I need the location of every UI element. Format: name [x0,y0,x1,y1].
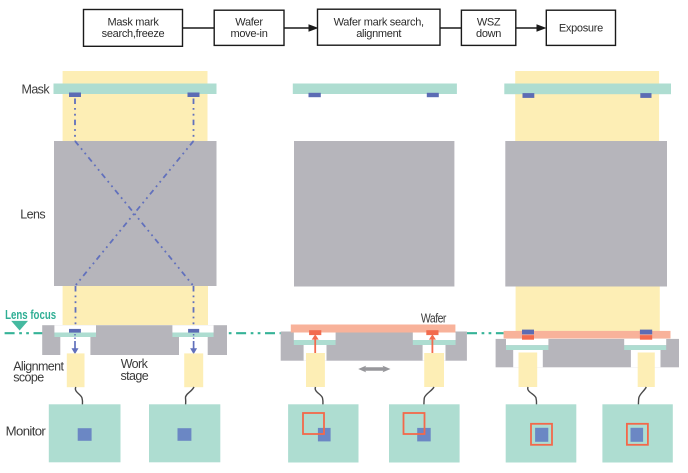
svg-text:stage: stage [121,369,149,383]
svg-text:Lens: Lens [20,208,45,222]
svg-text:scope: scope [13,370,44,384]
svg-text:Mask mark: Mask mark [107,17,159,29]
svg-text:down: down [476,28,501,40]
svg-text:Exposure: Exposure [559,23,603,35]
svg-text:WSZ: WSZ [477,17,501,29]
svg-text:move-in: move-in [230,28,267,40]
svg-text:Wafer: Wafer [235,17,263,29]
svg-text:Mask: Mask [22,82,51,96]
svg-text:alignment: alignment [356,28,401,40]
svg-text:Wafer mark search,: Wafer mark search, [334,17,424,29]
svg-text:Lens focus: Lens focus [5,307,56,322]
svg-text:Wafer: Wafer [421,312,446,326]
svg-text:Monitor: Monitor [6,425,46,439]
svg-text:search,freeze: search,freeze [102,28,165,40]
